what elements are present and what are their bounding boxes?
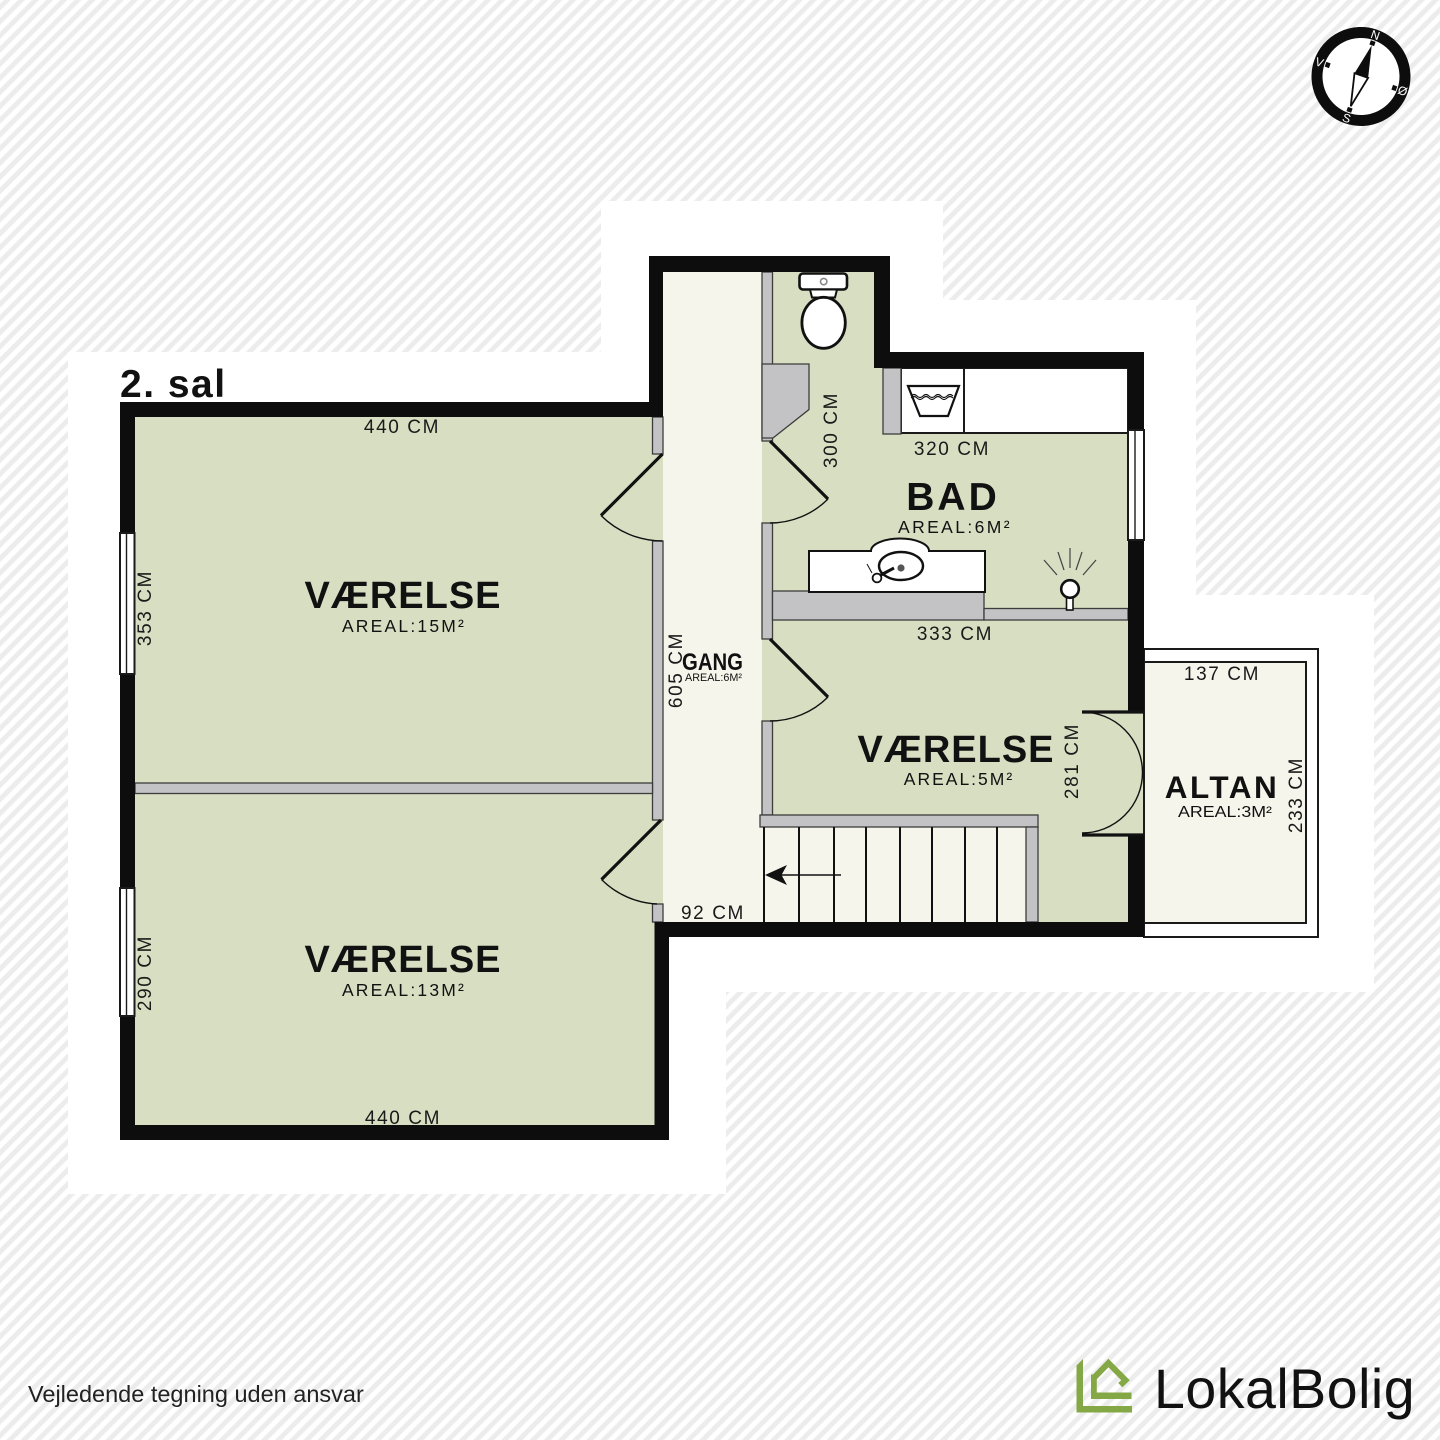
svg-text:233 CM: 233 CM [1286, 757, 1307, 833]
svg-text:BAD: BAD [906, 476, 1000, 519]
svg-text:2. sal: 2. sal [120, 363, 227, 406]
svg-text:VÆRELSE: VÆRELSE [304, 575, 501, 617]
svg-text:92 CM: 92 CM [681, 903, 745, 924]
svg-text:ALTAN: ALTAN [1165, 769, 1280, 805]
svg-text:VÆRELSE: VÆRELSE [304, 939, 501, 981]
svg-text:AREAL:13M²: AREAL:13M² [342, 980, 466, 1000]
svg-text:Vejledende tegning uden ansvar: Vejledende tegning uden ansvar [28, 1381, 364, 1407]
svg-text:333 CM: 333 CM [917, 624, 993, 645]
svg-text:440 CM: 440 CM [365, 1108, 441, 1129]
svg-text:137 CM: 137 CM [1184, 664, 1260, 685]
svg-text:AREAL:15M²: AREAL:15M² [342, 616, 466, 636]
svg-text:AREAL:6M²: AREAL:6M² [685, 672, 742, 684]
svg-text:AREAL:6M²: AREAL:6M² [898, 517, 1012, 537]
svg-text:281 CM: 281 CM [1062, 723, 1083, 799]
svg-text:320 CM: 320 CM [914, 439, 990, 460]
svg-text:440 CM: 440 CM [364, 417, 440, 438]
svg-text:290 CM: 290 CM [135, 935, 156, 1011]
svg-text:AREAL:3M²: AREAL:3M² [1178, 804, 1272, 821]
svg-text:300 CM: 300 CM [821, 392, 842, 468]
svg-text:605 CM: 605 CM [666, 632, 687, 708]
svg-text:353 CM: 353 CM [135, 570, 156, 646]
svg-text:LokalBolig: LokalBolig [1154, 1358, 1415, 1420]
svg-text:VÆRELSE: VÆRELSE [857, 729, 1054, 771]
svg-text:AREAL:5M²: AREAL:5M² [904, 769, 1014, 789]
